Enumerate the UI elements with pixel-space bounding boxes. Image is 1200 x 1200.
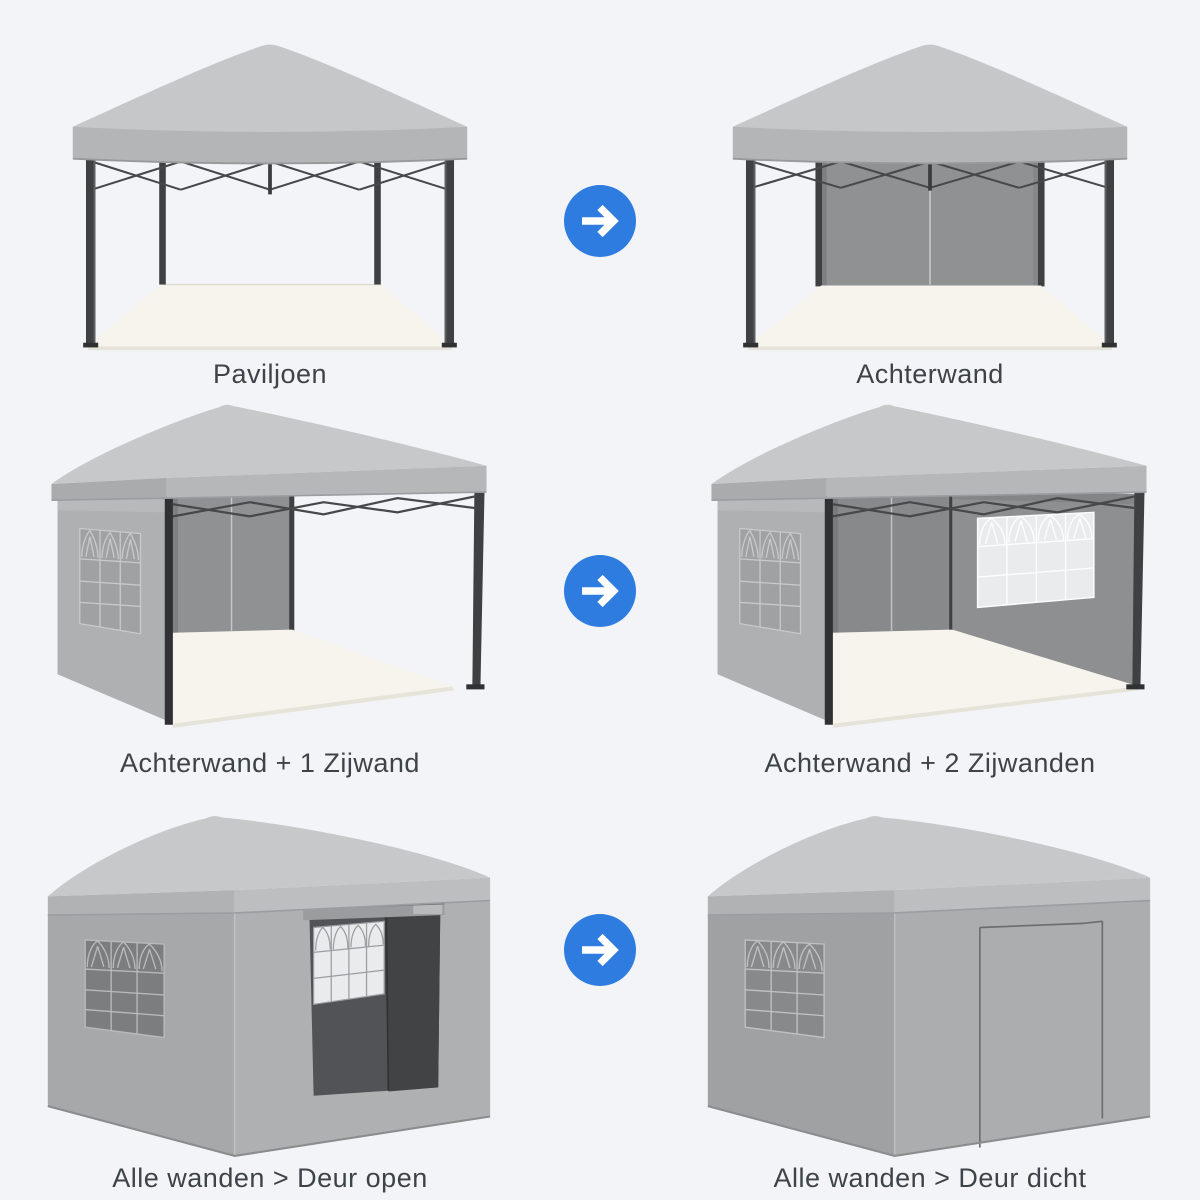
- caption-back-plus-1-side: Achterwand + 1 Zijwand: [120, 747, 420, 779]
- left-side-wall: [718, 496, 827, 721]
- front-right-leg: [466, 492, 484, 689]
- tent-back-wall-image: [714, 16, 1146, 354]
- tent-door-open-image: [31, 805, 509, 1158]
- cell-all-walls-door-open: Alle wanden > Deur open: [0, 785, 540, 1200]
- cell-pavilion: Paviljoen: [0, 0, 540, 396]
- canopy-roof: [48, 816, 490, 915]
- tent-back-2-sides-image: [697, 399, 1163, 743]
- canopy-roof: [73, 44, 467, 163]
- arrow-right-icon: [564, 555, 636, 627]
- tent-door-closed-image: [691, 805, 1169, 1158]
- canopy-roof: [51, 404, 486, 499]
- door-opening: [303, 903, 444, 1095]
- floor: [88, 284, 452, 350]
- canopy-roof: [711, 404, 1146, 499]
- front-left-leg: [825, 496, 833, 725]
- side-window: [80, 528, 141, 633]
- inner-window-light: [314, 921, 385, 1004]
- arrow-col-2: [540, 396, 660, 785]
- left-wall: [48, 913, 235, 1156]
- caption-back-plus-2-sides: Achterwand + 2 Zijwanden: [765, 747, 1096, 779]
- arrow-col-3: [540, 785, 660, 1200]
- canopy-roof: [733, 44, 1127, 163]
- row-3: Alle wanden > Deur open: [0, 785, 1200, 1200]
- tent-back-1-side-image: [37, 399, 503, 743]
- caption-back-wall: Achterwand: [856, 358, 1004, 390]
- cell-back-wall: Achterwand: [660, 0, 1200, 396]
- floor: [173, 629, 454, 727]
- caption-all-walls-door-open: Alle wanden > Deur open: [112, 1162, 427, 1194]
- canopy-roof: [708, 816, 1150, 915]
- caption-pavilion: Paviljoen: [213, 358, 327, 390]
- tent-pavilion-image: [54, 16, 486, 354]
- left-wall: [708, 913, 895, 1156]
- arrow-right-icon: [564, 185, 636, 257]
- cell-back-plus-1-side: Achterwand + 1 Zijwand: [0, 396, 540, 785]
- side-window: [745, 940, 824, 1038]
- front-wall: [895, 900, 1150, 1155]
- cell-all-walls-door-closed: Alle wanden > Deur dicht: [660, 785, 1200, 1200]
- floor: [748, 285, 1112, 350]
- cell-back-plus-2-sides: Achterwand + 2 Zijwanden: [660, 396, 1200, 785]
- rear-leg: [289, 490, 294, 632]
- arrow-right-icon: [564, 914, 636, 986]
- product-diagram: Paviljoen: [0, 0, 1200, 1200]
- side-window: [740, 528, 801, 633]
- row-1: Paviljoen: [0, 0, 1200, 396]
- arrow-col-1: [540, 0, 660, 396]
- left-side-wall: [58, 496, 167, 721]
- side-window-light: [978, 512, 1094, 607]
- row-2: Achterwand + 1 Zijwand: [0, 396, 1200, 785]
- front-left-leg: [165, 496, 173, 725]
- side-window: [85, 940, 164, 1038]
- caption-all-walls-door-closed: Alle wanden > Deur dicht: [774, 1162, 1087, 1194]
